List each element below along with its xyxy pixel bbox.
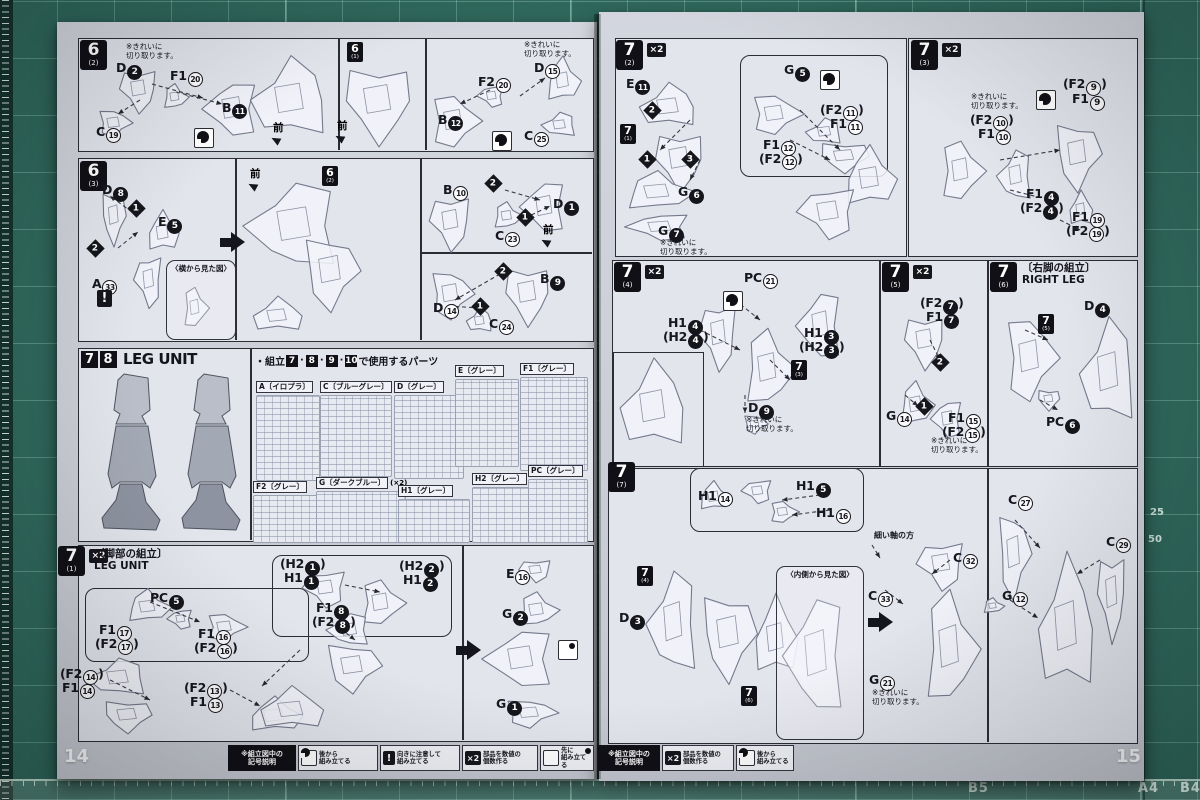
- legend-item: !向きに注意して 組み立てる: [380, 745, 460, 771]
- part-label: PC6: [1046, 414, 1080, 434]
- part-number-badge: 6: [1065, 419, 1080, 434]
- part-label: H12: [403, 572, 438, 592]
- part-letter: E: [506, 566, 514, 581]
- substep-number: (4): [614, 281, 641, 289]
- ref-substep-number: (1): [347, 54, 363, 60]
- part-letter: C: [495, 228, 504, 243]
- arrow-stem: [868, 618, 879, 627]
- assembled-in-step-ref-tag: 7(1): [620, 124, 636, 144]
- part-letter: PC: [150, 590, 168, 605]
- symbol-glyph: [585, 748, 591, 754]
- part-label: F220: [478, 74, 511, 93]
- legend-item-text: 後から 組み立てる: [757, 751, 788, 766]
- part-letter: C: [868, 588, 877, 603]
- part-label: D4: [1084, 298, 1110, 318]
- part-label: G12: [1002, 588, 1028, 607]
- step-number: 7: [911, 42, 938, 59]
- runner-thumbnail: [520, 377, 588, 471]
- part-label: H11: [284, 570, 319, 590]
- photo-of-model-kit-instructions: B5A4B42550 6(2)※きれいに 切り取ります。D2F120B11C19…: [0, 0, 1200, 800]
- step-tag: 7(7): [608, 462, 635, 492]
- part-letter: G: [678, 184, 688, 199]
- part-label: C24: [489, 316, 514, 335]
- header-english: RIGHT LEG: [1022, 274, 1096, 286]
- runner-label: D〔グレー〕: [394, 381, 444, 393]
- runner-label-row: H2〔グレー〕: [472, 466, 530, 485]
- ref-step-number: 6: [347, 43, 363, 54]
- diamond-number: 1: [133, 203, 139, 213]
- ref-step-number: 7: [1038, 315, 1054, 326]
- part-number-badge: 5: [816, 483, 831, 498]
- assembly-note: ※きれいに 切り取ります。: [524, 40, 576, 58]
- runner-thumbnail: [256, 395, 320, 481]
- assembly-order-diamond: 2: [643, 101, 661, 119]
- part-label: (H23): [799, 339, 844, 359]
- diamond-number: 1: [921, 401, 927, 411]
- part-letter: PC: [744, 270, 762, 285]
- runner-label: A〔イロプラ〕: [256, 381, 313, 393]
- part-label: E16: [506, 566, 530, 585]
- runner-thumbnail: [472, 487, 530, 543]
- legend-item: ×2部品を数値の 個数作る: [662, 745, 734, 771]
- part-letter: F2: [1068, 76, 1085, 91]
- parts-list-step-number: 9: [326, 355, 338, 367]
- part-label: F120: [170, 68, 203, 87]
- legend-item-text: 後から 組み立てる: [319, 751, 350, 766]
- part-label: C23: [495, 228, 520, 247]
- header-english: LEG UNIT: [94, 560, 168, 572]
- ref-substep-number: (6): [741, 698, 757, 704]
- front-direction-label: 前: [273, 120, 284, 144]
- part-number-badge: 20: [188, 72, 203, 87]
- part-letter: B: [222, 100, 231, 115]
- part-letter: F1: [948, 410, 965, 425]
- runner-label-row: E〔グレー〕: [455, 358, 519, 377]
- runner-item: A〔イロプラ〕: [256, 374, 320, 481]
- part-number-badge: 16: [217, 644, 232, 659]
- parts-list-step-number: 10: [345, 355, 357, 367]
- diamond-number: 2: [649, 105, 655, 115]
- arrow-tip: [879, 612, 893, 632]
- part-label: C33: [868, 588, 893, 607]
- ref-step-number: 7: [791, 361, 807, 372]
- legend-item: 先に 組み立てる: [540, 745, 594, 771]
- part-number-badge: 19: [1089, 227, 1104, 242]
- runner-label: C〔ブルーグレー〕: [320, 381, 392, 393]
- ref-substep-number: (1): [620, 136, 636, 142]
- callout-title: 〈内側から見た図〉: [777, 569, 863, 580]
- part-label: (F24): [1020, 200, 1063, 220]
- part-label: B10: [443, 182, 468, 201]
- part-letter: G: [496, 696, 506, 711]
- ref-substep-number: (3): [791, 372, 807, 378]
- assembly-order-diamond: 2: [484, 174, 502, 192]
- front-text: 前: [250, 168, 261, 180]
- part-number-badge: 11: [848, 120, 863, 135]
- part-number-badge: 32: [963, 554, 978, 569]
- part-label: G5: [784, 62, 810, 82]
- part-number-badge: 14: [80, 684, 95, 699]
- part-letter: C: [96, 124, 105, 139]
- part-number-badge: 27: [1018, 496, 1033, 511]
- part-number-badge: 13: [208, 698, 223, 713]
- part-number-badge: 20: [496, 78, 511, 93]
- assembly-order-diamond: 2: [494, 262, 512, 280]
- runner-thumbnail: [528, 479, 588, 543]
- substep-number: (6): [990, 281, 1017, 289]
- part-number-badge: 4: [688, 334, 703, 349]
- part-letter: D: [433, 300, 443, 315]
- legend-item-text: 部品を数値の 個数作る: [483, 751, 521, 766]
- runner-item: F2〔グレー〕: [253, 474, 319, 543]
- assembly-order-diamond: 1: [516, 208, 534, 226]
- assemble-after-symbol: [739, 750, 755, 766]
- part-number-badge: 12: [1013, 592, 1028, 607]
- annotation-text: 細い軸の方: [874, 530, 914, 541]
- ref-substep-number: (4): [637, 578, 653, 584]
- part-label: (F28): [312, 614, 355, 634]
- part-letter: H1: [284, 570, 303, 585]
- part-label: G1: [496, 696, 522, 716]
- part-label: D3: [619, 610, 645, 630]
- part-letter: F1: [190, 694, 207, 709]
- parts-list-header: ・組立 7·8·9·10 で使用するパーツ: [255, 353, 438, 368]
- front-arrow-icon: [247, 180, 259, 191]
- part-label: D14: [433, 300, 459, 319]
- runner-thumbnail: [316, 491, 406, 543]
- part-number-badge: 4: [1095, 303, 1110, 318]
- part-label: B11: [222, 100, 247, 119]
- part-number-badge: 5: [795, 67, 810, 82]
- runner-item: H1〔グレー〕: [398, 478, 470, 543]
- part-number-badge: 12: [448, 116, 463, 131]
- assembled-in-step-ref-tag: 7(4): [637, 566, 653, 586]
- part-number-badge: 23: [505, 232, 520, 247]
- part-label: C27: [1008, 492, 1033, 511]
- part-number-badge: 24: [499, 320, 514, 335]
- part-label: G14: [886, 408, 912, 427]
- part-number-badge: 11: [635, 80, 650, 95]
- part-number-badge: 16: [836, 509, 851, 524]
- assembly-note: ※きれいに 切り取ります。: [931, 436, 983, 454]
- part-letter: F1: [830, 116, 847, 131]
- runner-label-row: A〔イロプラ〕: [256, 374, 320, 393]
- step-number: 7: [58, 548, 85, 565]
- part-letter: F1: [763, 137, 780, 152]
- part-label: F19: [1072, 91, 1105, 111]
- part-number-badge: 16: [515, 570, 530, 585]
- front-arrow-icon: [334, 132, 346, 143]
- part-label: F17: [926, 309, 959, 329]
- symbol-glyph: [726, 294, 738, 306]
- detail-view-callout: 〈内側から見た図〉: [776, 566, 864, 740]
- part-number-badge: 25: [534, 132, 549, 147]
- part-letter: C: [489, 316, 498, 331]
- ref-step-number: 7: [741, 687, 757, 698]
- part-letter: F2: [100, 636, 117, 651]
- part-letter: F1: [198, 626, 215, 641]
- runner-item: H2〔グレー〕: [472, 466, 530, 543]
- assembled-in-step-ref-tag: 7(3): [791, 360, 807, 380]
- assembly-note: ※きれいに 切り取ります。: [872, 688, 924, 706]
- part-number-badge: 7: [944, 314, 959, 329]
- runner-label-row: C〔ブルーグレー〕: [320, 374, 392, 393]
- diamond-number: 2: [490, 178, 496, 188]
- part-letter: F2: [1071, 223, 1088, 238]
- part-letter: F1: [978, 126, 995, 141]
- symbol-glyph: [1039, 93, 1051, 105]
- part-label: F114: [62, 680, 95, 699]
- part-letter: B: [540, 271, 549, 286]
- step-number: 7: [990, 264, 1017, 281]
- runner-label-row: D〔グレー〕: [394, 374, 464, 393]
- front-text: 前: [337, 120, 348, 132]
- part-label: E5: [158, 214, 182, 234]
- parts-list-step-number: 8: [306, 355, 318, 367]
- runner-label: E〔グレー〕: [455, 365, 504, 377]
- part-letter: C: [1008, 492, 1017, 507]
- assembled-in-step-ref-tag: 7(5): [1038, 314, 1054, 334]
- part-letter: G: [784, 62, 794, 77]
- step-number: 7: [608, 464, 635, 481]
- runner-item: G〔ダークブルー〕(×2): [316, 470, 407, 543]
- part-label: D1: [553, 196, 579, 216]
- runner-label: F1〔グレー〕: [520, 363, 574, 375]
- part-letter: H2: [668, 329, 687, 344]
- part-letter: F1: [1026, 186, 1043, 201]
- substep-number: (5): [882, 281, 909, 289]
- step-tag: 7(5)×2: [882, 262, 909, 292]
- diamond-number: 2: [500, 266, 506, 276]
- legend-title: ※組立図中の 記号説明: [228, 745, 296, 771]
- step-tag: 7(6): [990, 262, 1017, 292]
- part-letter: F2: [189, 680, 206, 695]
- part-number-badge: 12: [782, 155, 797, 170]
- arrow-stem: [220, 238, 231, 247]
- part-number-badge: 33: [878, 592, 893, 607]
- symbol-glyph: [197, 131, 209, 143]
- legend-item: 後から 組み立てる: [298, 745, 378, 771]
- runner-label-row: PC〔グレー〕: [528, 458, 588, 477]
- legend-item-text: 部品を数値の 個数作る: [683, 751, 721, 766]
- assemble-after-symbol: [492, 131, 512, 151]
- assembled-in-step-ref-tag: 6(2): [322, 166, 338, 186]
- assemble-after-symbol: [194, 128, 214, 148]
- part-letter: D: [553, 196, 563, 211]
- runner-label-row: H1〔グレー〕: [398, 478, 470, 497]
- symbol-glyph: [823, 73, 835, 85]
- assemble-after-symbol: [1036, 90, 1056, 110]
- assembly-order-diamond: 1: [127, 199, 145, 217]
- part-letter: C: [524, 128, 533, 143]
- part-number-badge: 9: [550, 276, 565, 291]
- part-letter: H1: [403, 572, 422, 587]
- part-letter: H2: [404, 558, 423, 573]
- part-label: C32: [953, 550, 978, 569]
- step-tag: 6(2): [80, 40, 107, 70]
- header-japanese: 〔脚部の組立〕: [94, 548, 168, 560]
- substep-number: (3): [911, 59, 938, 67]
- part-number-badge: 10: [996, 130, 1011, 145]
- step-number: 6: [80, 163, 107, 180]
- next-step-arrow: [220, 232, 245, 252]
- step-section-header: 〔右脚の組立〕RIGHT LEG: [1022, 262, 1096, 286]
- part-number-badge: 11: [232, 104, 247, 119]
- legend-item-text: 向きに注意して 組み立てる: [397, 751, 441, 766]
- part-number-badge: 10: [453, 186, 468, 201]
- part-label: H15: [796, 478, 831, 498]
- runner-item: E〔グレー〕: [455, 358, 519, 467]
- detail-view-callout: 〈横から見た図〉: [166, 260, 236, 340]
- part-letter: D: [1084, 298, 1094, 313]
- ref-step-number: 6: [322, 167, 338, 178]
- part-letter: B: [438, 112, 447, 127]
- part-label: D8: [102, 182, 128, 202]
- part-letter: F1: [926, 309, 943, 324]
- symbol-glyph: [569, 643, 575, 649]
- runner-label-row: F1〔グレー〕: [520, 356, 588, 375]
- part-letter: G: [1002, 588, 1012, 603]
- part-letter: F2: [825, 102, 842, 117]
- part-letter: F1: [1072, 209, 1089, 224]
- part-number-badge: 15: [545, 64, 560, 79]
- runner-item: PC〔グレー〕: [528, 458, 588, 543]
- x2-symbol: ×2: [465, 751, 481, 765]
- part-letter: H2: [804, 339, 823, 354]
- part-number-badge: 6: [689, 189, 704, 204]
- runner-label-row: G〔ダークブルー〕(×2): [316, 470, 407, 489]
- part-label: C29: [1106, 534, 1131, 553]
- part-letter: D: [748, 400, 758, 415]
- part-letter: F1: [170, 68, 187, 83]
- runner-label-row: F2〔グレー〕: [253, 474, 319, 493]
- part-label: (F212): [759, 151, 802, 170]
- page-number-right: 15: [1116, 746, 1141, 767]
- runner-thumbnail: [253, 495, 319, 543]
- ref-substep-number: (5): [1038, 326, 1054, 332]
- diamond-number: 2: [937, 357, 943, 367]
- assembly-order-diamond: 2: [86, 239, 104, 257]
- part-label: H116: [816, 505, 851, 524]
- part-letter: E: [626, 76, 634, 91]
- legend-item: ×2部品を数値の 個数作る: [462, 745, 538, 771]
- substep-number: (2): [80, 59, 107, 67]
- assemble-after-symbol: [820, 70, 840, 90]
- parts-list-suffix: で使用するパーツ: [358, 353, 438, 368]
- runner-label: PC〔グレー〕: [528, 465, 583, 477]
- step-tag: 7(1)×2: [58, 546, 85, 576]
- part-letter: G: [658, 223, 668, 238]
- assemble-first-symbol: [558, 640, 578, 660]
- assembly-note: ※きれいに 切り取ります。: [746, 415, 798, 433]
- assemble-first-symbol: [543, 750, 559, 766]
- ref-step-number: 7: [637, 567, 653, 578]
- part-label: D2: [116, 60, 142, 80]
- part-number-badge: 5: [169, 595, 184, 610]
- part-letter: H1: [816, 505, 835, 520]
- ref-substep-number: (2): [322, 178, 338, 184]
- part-letter: G: [886, 408, 896, 423]
- section-header: 78LEG UNIT: [81, 350, 197, 368]
- arrow-tip: [467, 640, 481, 660]
- step-number: 7: [614, 264, 641, 281]
- part-number-badge: 2: [127, 65, 142, 80]
- parts-list-prefix: ・組立: [255, 353, 285, 368]
- part-label: G2: [502, 606, 528, 626]
- step-number: 6: [80, 42, 107, 59]
- assembly-order-diamond: 2: [931, 353, 949, 371]
- assembly-note: ※きれいに 切り取ります。: [126, 42, 178, 60]
- front-direction-label: 前: [250, 166, 261, 190]
- runner-label: H2〔グレー〕: [472, 473, 527, 485]
- section-step-number: 7: [81, 351, 98, 368]
- header-japanese: 〔右脚の組立〕: [1022, 262, 1096, 274]
- page-number-left: 14: [64, 746, 89, 767]
- runner-label: G〔ダークブルー〕: [316, 477, 388, 489]
- substep-number: (7): [608, 481, 635, 489]
- part-label: PC5: [150, 590, 184, 610]
- legend-item: 後から 組み立てる: [736, 745, 794, 771]
- part-number-badge: 3: [824, 344, 839, 359]
- substep-number: (1): [58, 565, 85, 573]
- part-letter: H1: [668, 315, 687, 330]
- part-number-badge: 19: [106, 128, 121, 143]
- part-number-badge: 14: [897, 412, 912, 427]
- assemble-after-symbol: [301, 750, 317, 766]
- runner-label: F2〔グレー〕: [253, 481, 307, 493]
- part-letter: D: [116, 60, 126, 75]
- part-number-badge: 4: [1043, 205, 1058, 220]
- diamond-number: 1: [522, 212, 528, 222]
- x2-badge: ×2: [647, 43, 666, 57]
- part-letter: PC: [1046, 414, 1064, 429]
- part-label: C25: [524, 128, 549, 147]
- diagram-labels: 6(2)※きれいに 切り取ります。D2F120B11C19前6(1)前※きれいに…: [0, 0, 1200, 800]
- assembly-note: ※きれいに 切り取ります。: [971, 92, 1023, 110]
- part-number-badge: 2: [423, 577, 438, 592]
- part-letter: C: [953, 550, 962, 565]
- part-letter: H1: [698, 488, 717, 503]
- separator: ·: [320, 355, 324, 366]
- runner-thumbnail: [398, 499, 470, 543]
- runner-item: D〔グレー〕: [394, 374, 464, 479]
- part-number-badge: 5: [167, 219, 182, 234]
- front-text: 前: [273, 122, 284, 134]
- assembled-in-step-ref-tag: 6(1): [347, 42, 363, 62]
- front-text: 前: [543, 224, 554, 236]
- x2-badge: ×2: [942, 43, 961, 57]
- next-step-arrow: [868, 612, 893, 632]
- step-tag: 7(3)×2: [911, 40, 938, 70]
- part-letter: F1: [316, 600, 333, 615]
- runner-thumbnail: [320, 395, 392, 477]
- part-letter: G: [869, 672, 879, 687]
- front-arrow-icon: [540, 236, 552, 247]
- part-letter: F2: [975, 112, 992, 127]
- callout-title: 〈横から見た図〉: [167, 263, 235, 274]
- runner-thumbnail: [394, 395, 464, 479]
- runner-label: H1〔グレー〕: [398, 485, 453, 497]
- part-letter: H1: [796, 478, 815, 493]
- arrow-stem: [456, 646, 467, 655]
- part-number-badge: 1: [304, 575, 319, 590]
- warning-symbol: !: [383, 751, 395, 765]
- x2-badge: ×2: [645, 265, 664, 279]
- assembled-in-step-ref-tag: 7(6): [741, 686, 757, 706]
- part-letter: E: [158, 214, 166, 229]
- part-number-badge: 14: [444, 304, 459, 319]
- part-letter: F2: [764, 151, 781, 166]
